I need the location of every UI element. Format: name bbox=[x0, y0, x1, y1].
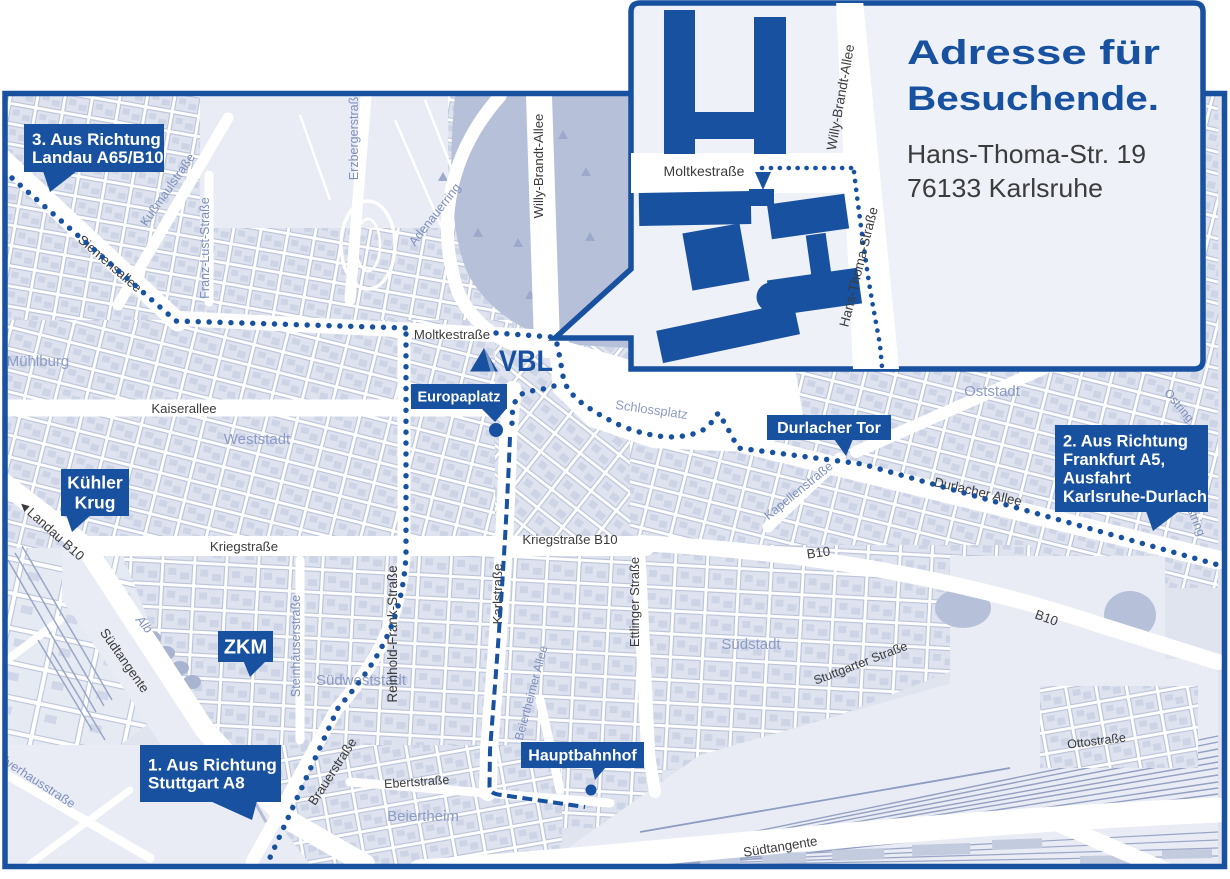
svg-text:Weststadt: Weststadt bbox=[224, 431, 291, 448]
svg-text:Moltkestraße: Moltkestraße bbox=[664, 163, 745, 179]
svg-text:Erzbergerstraße: Erzbergerstraße bbox=[347, 90, 361, 180]
svg-text:Ettlinger Straße: Ettlinger Straße bbox=[627, 557, 642, 647]
svg-text:3. Aus Richtung: 3. Aus Richtung bbox=[32, 130, 161, 149]
svg-text:76133 Karlsruhe: 76133 Karlsruhe bbox=[907, 173, 1103, 203]
svg-text:Europaplatz: Europaplatz bbox=[418, 390, 501, 406]
svg-text:Oststadt: Oststadt bbox=[964, 383, 1021, 400]
svg-text:Willy-Brandt-Allee: Willy-Brandt-Allee bbox=[531, 114, 546, 219]
svg-text:Kaiserallee: Kaiserallee bbox=[151, 401, 216, 416]
svg-text:Südstadt: Südstadt bbox=[721, 636, 781, 653]
svg-text:Durlacher Tor: Durlacher Tor bbox=[777, 420, 881, 437]
svg-text:Steinhäuserstraße: Steinhäuserstraße bbox=[289, 595, 303, 697]
svg-text:2. Aus Richtung: 2. Aus Richtung bbox=[1063, 433, 1188, 451]
svg-text:Landau A65/B10: Landau A65/B10 bbox=[32, 148, 164, 167]
svg-text:Franz-Lust-Straße: Franz-Lust-Straße bbox=[198, 197, 212, 298]
svg-text:Beiertheim: Beiertheim bbox=[387, 808, 459, 825]
svg-text:Kühler: Kühler bbox=[67, 473, 123, 493]
svg-text:Kriegstraße B10: Kriegstraße B10 bbox=[522, 532, 617, 547]
svg-text:VBL: VBL bbox=[499, 345, 553, 378]
svg-text:Hans-Thoma-Str. 19: Hans-Thoma-Str. 19 bbox=[907, 139, 1146, 169]
svg-text:Adresse für: Adresse für bbox=[907, 34, 1160, 72]
svg-text:Ausfahrt: Ausfahrt bbox=[1063, 470, 1131, 488]
svg-text:Hauptbahnhof: Hauptbahnhof bbox=[528, 748, 637, 765]
svg-text:Krug: Krug bbox=[75, 493, 116, 513]
svg-text:Moltkestraße: Moltkestraße bbox=[414, 327, 490, 342]
svg-text:Kriegstraße: Kriegstraße bbox=[210, 539, 278, 554]
svg-text:Besuchende.: Besuchende. bbox=[907, 80, 1159, 118]
svg-text:Mühlburg: Mühlburg bbox=[7, 353, 70, 370]
svg-text:Frankfurt A5,: Frankfurt A5, bbox=[1063, 451, 1165, 469]
svg-text:Stuttgart A8: Stuttgart A8 bbox=[148, 774, 245, 793]
svg-text:Karlsruhe-Durlach: Karlsruhe-Durlach bbox=[1063, 488, 1207, 506]
svg-text:ZKM: ZKM bbox=[224, 637, 267, 659]
svg-text:1. Aus Richtung: 1. Aus Richtung bbox=[148, 756, 277, 775]
